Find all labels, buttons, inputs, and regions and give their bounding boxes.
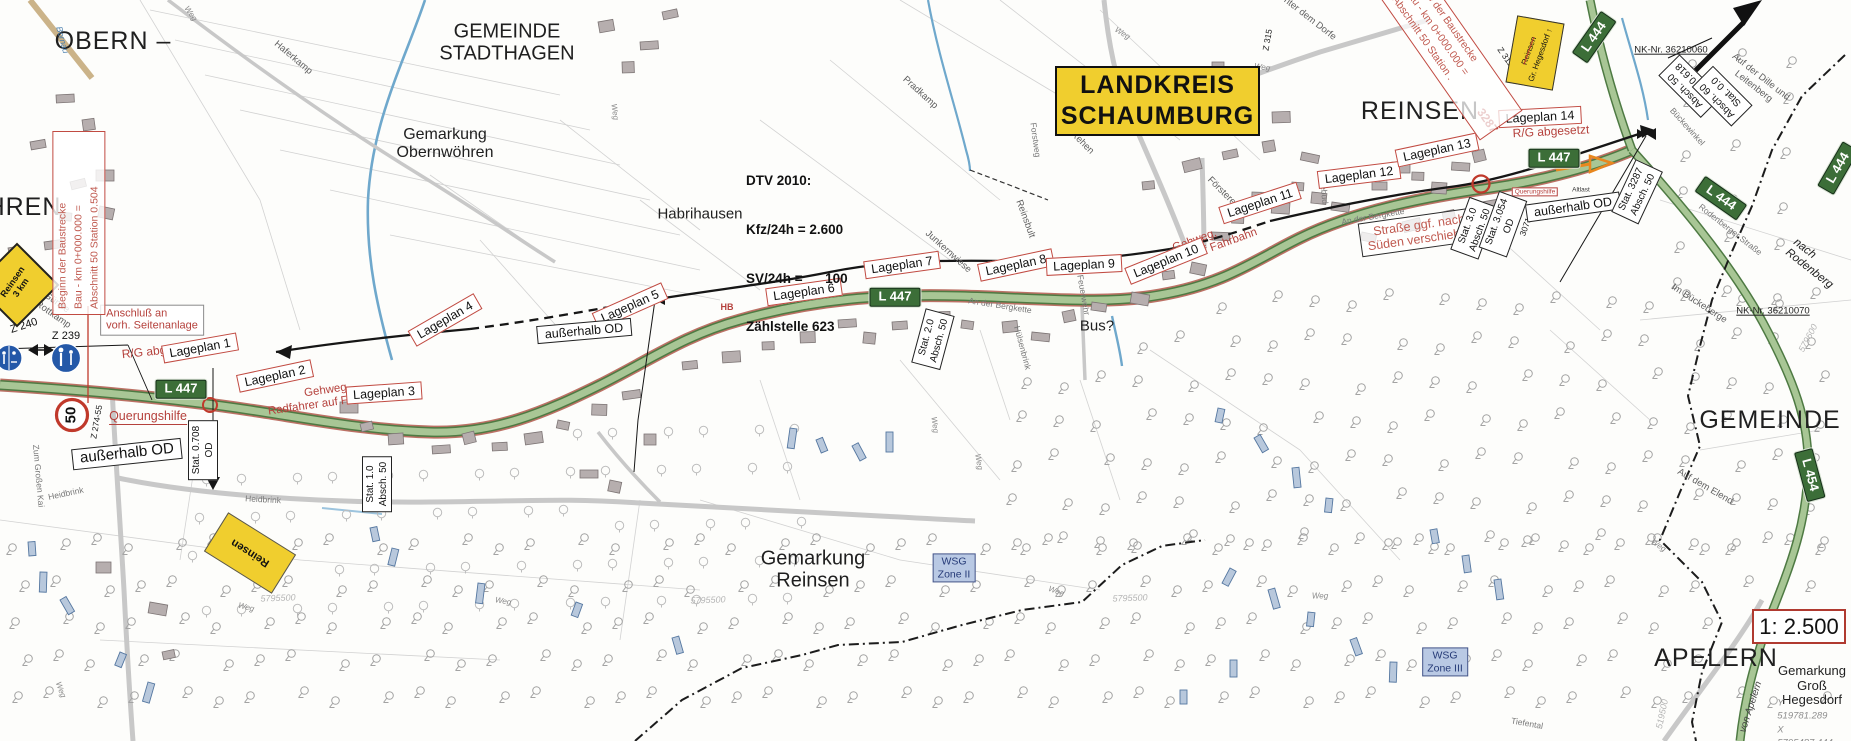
road-number-sign: L 447 xyxy=(869,288,920,307)
wsg-zone-box: WSG Zone II xyxy=(933,553,976,582)
sign-z240-icon xyxy=(0,345,22,371)
distance-sign-text: Reinsen 3 km xyxy=(0,265,35,305)
label-querungshilfe-left: Querungshilfe xyxy=(109,409,187,425)
label-5795500: 5795500 xyxy=(1112,592,1147,603)
landkreis-schaumburg-box: LANDKREIS SCHAUMBURG xyxy=(1055,66,1260,136)
dtv-line3: SV/24h = 100 xyxy=(746,271,848,287)
place-sign-text: Reinsen xyxy=(229,536,272,569)
dtv-line2: Kfz/24h = 2.600 xyxy=(746,222,848,238)
label-weg: Weg xyxy=(972,453,984,471)
right-stream xyxy=(1622,18,1648,120)
label-anschlu-an-vorh-seitenanlage: Anschluß an vorh. Seitenanlage xyxy=(100,305,204,336)
label-coordinates: Y 519781.289 X 5795487.444 xyxy=(1777,696,1832,741)
label-weg: Weg xyxy=(928,416,939,433)
road-number-sign: L 447 xyxy=(1528,149,1579,168)
station-box: Stat. 0.708 OD xyxy=(188,420,218,480)
station-box: Stat. 1.0 Absch. 50 xyxy=(362,456,392,512)
label-weg: Weg xyxy=(1312,593,1328,602)
label-5795500: 5795500 xyxy=(260,592,295,603)
label-apelern: APELERN xyxy=(1654,644,1778,672)
beginn-line2: Bau - km 0+000.000 = xyxy=(71,137,87,309)
road-number-sign: L 447 xyxy=(155,380,206,399)
label-altlast: Altlast xyxy=(1572,186,1590,193)
label-habrihausen: Habrihausen xyxy=(657,207,742,224)
beginn-baustrecke-note: Beginn der Baustrecke Bau - km 0+000.000… xyxy=(52,131,105,315)
label-bus: Bus? xyxy=(1080,319,1114,336)
label-gemarkung-reinsen: Gemarkung Reinsen xyxy=(761,548,866,593)
label-heidbrink: Heidbrink xyxy=(245,494,281,505)
label-nk-36210060: NK-Nr. 36210060 xyxy=(1634,46,1707,57)
landkreis-line1: LANDKREIS xyxy=(1057,70,1258,101)
label-hb: HB xyxy=(721,302,734,312)
label-querungshilfe-right: Querungshilfe xyxy=(1512,187,1558,196)
label-gemarkung-obernwoehren: Gemarkung Obernwöhren xyxy=(397,126,494,162)
label-gemeinde-right: GEMEINDE xyxy=(1699,406,1840,434)
direction-sign-text: ReinsenGr. Hegesdorf ↑ xyxy=(1514,23,1556,84)
sign-z239-icon xyxy=(52,344,81,373)
label-z-239: Z 239 xyxy=(52,330,80,342)
boundary-stream xyxy=(368,0,425,360)
label-nk-36210070: NK-Nr. 36210070 xyxy=(1736,307,1809,318)
scale-value: 1: 2.500 xyxy=(1759,614,1839,640)
wsg-zone-box: WSG Zone III xyxy=(1422,647,1468,676)
beginn-line1: Beginn der Baustrecke xyxy=(55,137,71,309)
speed-limit-50-sign-label: 50 xyxy=(64,407,81,424)
center-stream xyxy=(928,0,970,171)
label-weg: Weg xyxy=(608,103,619,120)
label-5795500: 5795500 xyxy=(690,594,725,605)
scale-indicator: 1: 2.500 xyxy=(1752,609,1846,644)
beginn-line3: Abschnitt 50 Station 0.504 xyxy=(87,137,103,309)
label-obern: OBERN – xyxy=(55,27,172,55)
dtv-line4: Zählstelle 623 xyxy=(746,319,848,335)
map-canvas: OBERN –HRENGEMEINDE STADTHAGENGemarkung … xyxy=(0,0,1851,741)
label-gemeinde-stadthagen: GEMEINDE STADTHAGEN xyxy=(439,21,574,66)
traffic-count-note: DTV 2010: Kfz/24h = 2.600 SV/24h = 100 Z… xyxy=(746,141,848,368)
dtv-line1: DTV 2010: xyxy=(746,173,848,189)
landkreis-line2: SCHAUMBURG xyxy=(1057,101,1258,132)
